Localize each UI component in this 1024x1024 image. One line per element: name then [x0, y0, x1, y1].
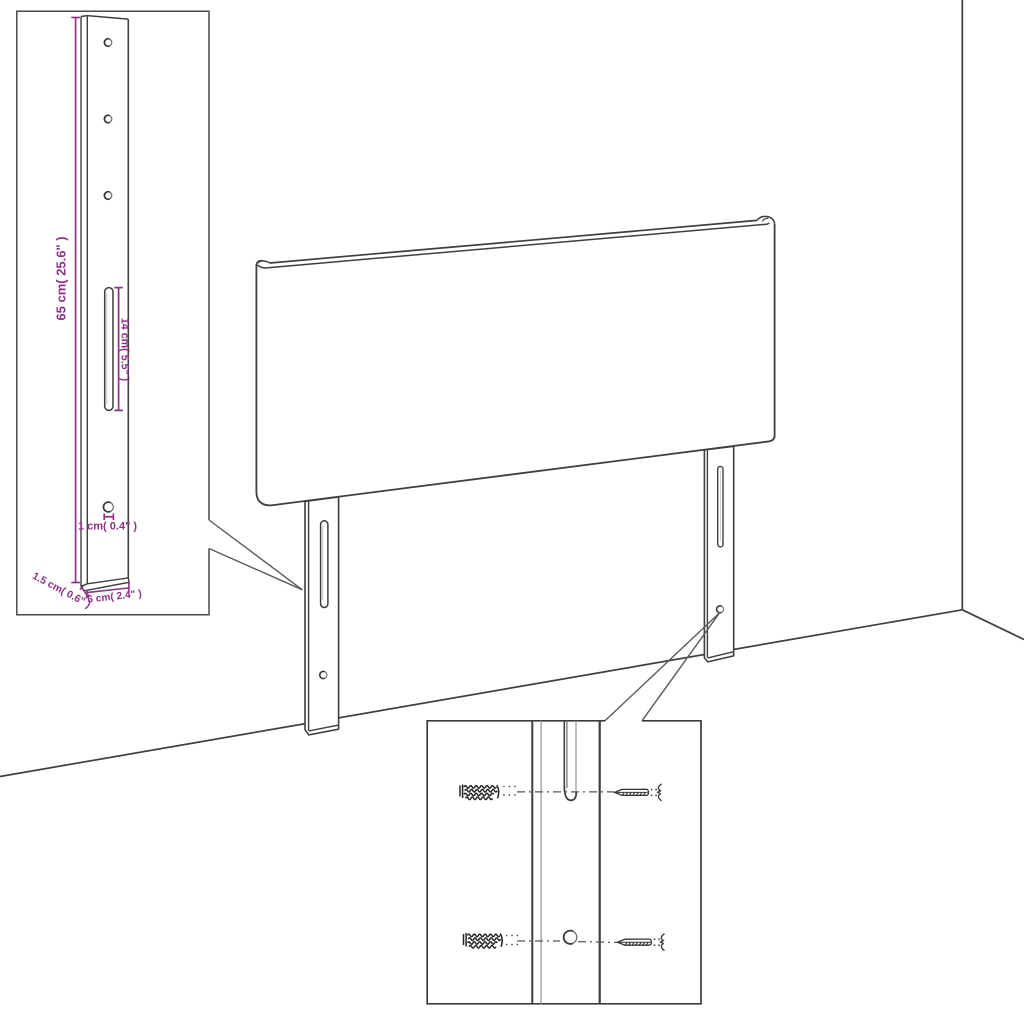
- svg-text:1 cm( 0.4" ): 1 cm( 0.4" ): [78, 521, 137, 533]
- svg-text:65 cm( 25.6" ): 65 cm( 25.6" ): [53, 236, 68, 320]
- svg-text:14 cm( 5.5" ): 14 cm( 5.5" ): [118, 318, 130, 382]
